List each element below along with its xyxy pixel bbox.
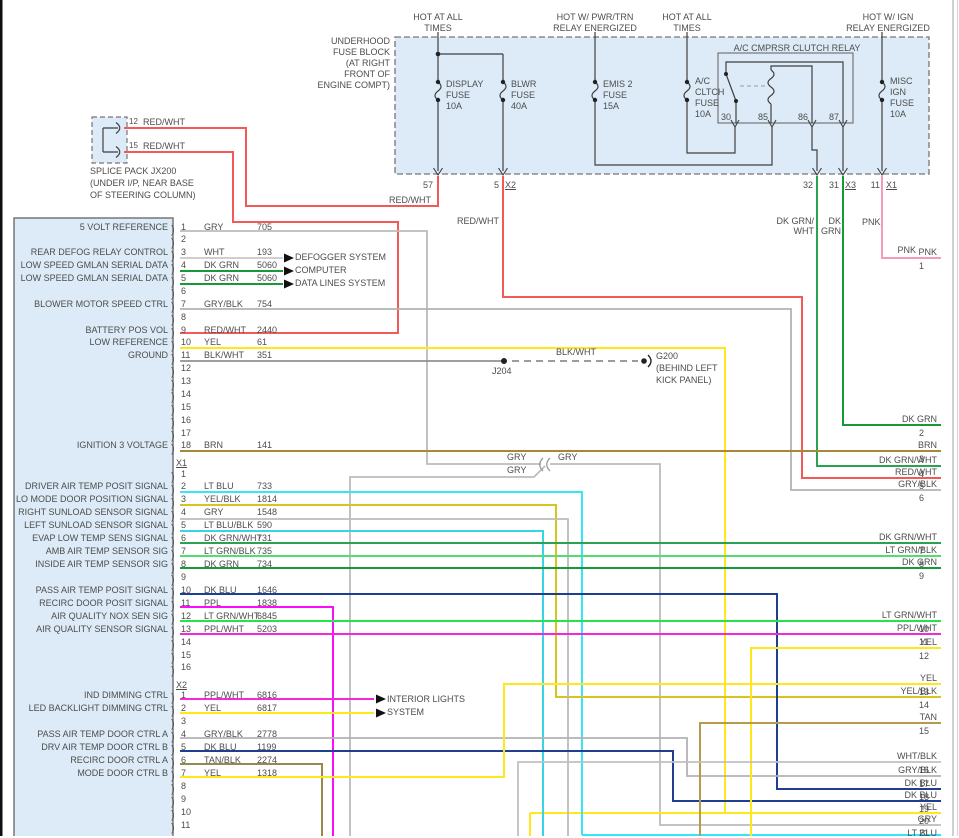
power-source-header: RELAY ENERGIZED: [553, 23, 637, 33]
exit-wire-label: DK GRN/WHT: [879, 455, 937, 465]
exit-wire-label: LT GRN/BLK: [885, 545, 937, 555]
wire-color-label: DK GRN: [204, 559, 239, 569]
power-source-header: HOT AT ALL: [662, 12, 712, 22]
pin-bracket: ): [171, 225, 175, 236]
pin-bracket: ): [171, 511, 175, 522]
exit-number: 9: [919, 571, 924, 581]
pin-number: 11: [181, 820, 190, 830]
wire-color-label: DK GRN: [204, 273, 239, 283]
pin-number: 12: [181, 363, 191, 373]
relay-pin-number: 30: [721, 112, 731, 122]
pin-number: 10: [181, 807, 191, 817]
pin-number: 16: [181, 662, 191, 672]
wire-color-label: LT BLU: [204, 481, 234, 491]
wire-label: BLK/WHT: [556, 347, 596, 357]
page-left-border: [0, 0, 3, 836]
pin-number: 2: [181, 703, 186, 713]
pin-bracket: ): [171, 563, 175, 574]
fuse-name: CLTCH: [695, 87, 724, 97]
fuse-name: FUSE: [890, 98, 914, 108]
pin-bracket: ): [171, 758, 175, 769]
exit-wire-label: DK GRN: [902, 414, 937, 424]
signal-label: LO MODE DOOR POSITION SIGNAL: [16, 494, 168, 504]
system-arrow-label: INTERIOR LIGHTS: [387, 694, 465, 704]
exit-wire-label: BRN: [918, 440, 937, 450]
signal-label: DRV AIR TEMP DOOR CTRL B: [41, 742, 168, 752]
fuse-block-label: UNDERHOOD: [331, 36, 390, 46]
wiring-diagram: HOT AT ALLTIMESHOT W/ PWR/TRNRELAY ENERG…: [0, 0, 959, 836]
signal-label: BLOWER MOTOR SPEED CTRL: [34, 299, 168, 309]
exit-wire-label: DK GRN/WHT: [879, 532, 937, 542]
splice-wire-label: RED/WHT: [143, 117, 185, 127]
signal-label: RECIRC DOOR POSIT SIGNAL: [39, 598, 168, 608]
pin-number: 5: [181, 520, 186, 530]
pin-bracket: ): [171, 367, 175, 378]
pin-bracket: ): [171, 653, 175, 664]
circuit-number: 61: [257, 337, 267, 347]
exit-wire-label: TAN: [920, 712, 937, 722]
fuse-exit-connector: X3: [845, 180, 856, 190]
wire-yel-blk-1814: [180, 505, 941, 697]
pin-bracket: ): [171, 289, 175, 300]
exit-wire-label: PPL/WHT: [897, 623, 937, 633]
pin-bracket: ): [171, 264, 175, 275]
wire-color-label: YEL: [204, 768, 221, 778]
circuit-number: 1199: [257, 742, 276, 752]
pin-bracket: ): [171, 784, 175, 795]
splice-pack-box: [92, 117, 127, 163]
fuse-name: EMIS 2: [603, 79, 633, 89]
signal-label: AIR QUALITY NOX SEN SIG: [51, 611, 168, 621]
circuit-number: 705: [257, 222, 272, 232]
pin-number: 7: [181, 299, 186, 309]
fuse-exit-number: 5: [494, 180, 499, 190]
pin-number: 7: [181, 768, 186, 778]
splice-wire-label: RED/WHT: [143, 141, 185, 151]
relay-pin-number: 86: [798, 112, 808, 122]
pin-number: 3: [181, 247, 186, 257]
pin-number: 17: [181, 428, 191, 438]
pin-number: 5: [181, 742, 186, 752]
ground-name: G200: [656, 351, 678, 361]
signal-label: LEFT SUNLOAD SENSOR SIGNAL: [24, 520, 168, 530]
pin-bracket: ): [171, 666, 175, 677]
wire-label: GRY: [507, 465, 526, 475]
pin-bracket: ): [171, 354, 175, 365]
wire-color-label: PPL/WHT: [204, 690, 244, 700]
fuse-name: MISC: [890, 76, 913, 86]
fuse-name: 10A: [446, 101, 462, 111]
circuit-number: 6817: [257, 703, 277, 713]
pin-bracket: ): [171, 524, 175, 535]
fuse-name: IGN: [890, 87, 906, 97]
pin-number: 9: [181, 572, 186, 582]
pin-bracket: ): [171, 315, 175, 326]
signal-label: PASS AIR TEMP DOOR CTRL A: [37, 729, 168, 739]
pin-bracket: ): [171, 498, 175, 509]
power-source-header: HOT AT ALL: [413, 12, 463, 22]
circuit-number: 733: [257, 481, 272, 491]
pin-bracket: ): [171, 380, 175, 391]
splice-pin-number: 15: [129, 141, 138, 151]
pin-bracket: ): [171, 745, 175, 756]
relay-pin-number: 85: [758, 112, 768, 122]
pin-number: 12: [181, 611, 191, 621]
circuit-number: 1838: [257, 598, 277, 608]
wire-tan-blk-2274: [180, 764, 322, 836]
wire-label: RED/WHT: [457, 216, 499, 226]
wire-color-label: GRY: [204, 222, 223, 232]
pin-bracket: ): [171, 627, 175, 638]
fuse-block-label: FRONT OF: [344, 69, 390, 79]
wire-color-label: DK GRN/WHT: [204, 533, 262, 543]
fuse-name: 15A: [603, 101, 619, 111]
circuit-number: 6816: [257, 690, 277, 700]
signal-label: INSIDE AIR TEMP SENSOR SIG: [35, 559, 168, 569]
circuit-number: 735: [257, 546, 272, 556]
ground-location: (BEHIND LEFT: [656, 363, 718, 373]
pin-number: 11: [181, 598, 190, 608]
exit-wire-label: GRY/BLK: [898, 765, 937, 775]
power-source-header: TIMES: [424, 23, 452, 33]
wire-label: GRN: [821, 226, 841, 236]
wire-color-label: GRY/BLK: [204, 729, 243, 739]
exit-wire-label: LT BLU: [907, 828, 937, 838]
circuit-number: 2778: [257, 729, 277, 739]
exit-wire-label: DK GRN: [902, 557, 937, 567]
signal-label: 5 VOLT REFERENCE: [80, 222, 168, 232]
wire-color-label: PPL/WHT: [204, 624, 244, 634]
wire-color-label: LT GRN/BLK: [204, 546, 256, 556]
fuse-name: BLWR: [511, 79, 536, 89]
signal-label: DRIVER AIR TEMP POSIT SIGNAL: [25, 481, 168, 491]
wire-label: DK GRN/: [776, 216, 814, 226]
wire-lt-blu-blk-590: [180, 531, 543, 836]
fuse-exit-connector: X2: [505, 180, 516, 190]
signal-label: LED BACKLIGHT DIMMING CTRL: [29, 703, 168, 713]
circuit-number: 141: [257, 440, 272, 450]
wire-color-label: BLK/WHT: [204, 350, 244, 360]
connector-section-header: X2: [176, 680, 187, 690]
exit-number: 15: [919, 726, 929, 736]
pin-number: 1: [181, 469, 186, 479]
pin-number: 9: [181, 794, 186, 804]
system-arrow-label: DATA LINES SYSTEM: [295, 278, 385, 288]
fuse-name: FUSE: [603, 90, 627, 100]
system-arrows: [284, 254, 386, 718]
signal-label: MODE DOOR CTRL B: [77, 768, 168, 778]
inline-connector-symbol: [540, 458, 550, 471]
circuit-number: 6845: [257, 611, 277, 621]
pin-number: 4: [181, 260, 186, 270]
fuse-name: A/C: [695, 76, 710, 86]
pin-bracket: ): [171, 431, 175, 442]
pin-bracket: ): [171, 706, 175, 717]
circuit-number: 5203: [257, 624, 277, 634]
pin-number: 2: [181, 234, 186, 244]
pin-number: 6: [181, 755, 186, 765]
wire-dk-grn-relay-87: [843, 176, 941, 425]
signal-label: GROUND: [128, 350, 168, 360]
exit-wire-label: LT GRN/WHT: [882, 610, 937, 620]
wire-color-label: BRN: [204, 440, 223, 450]
circuit-number: 2440: [257, 325, 277, 335]
pin-bracket: ): [171, 251, 175, 262]
fuse-exit-number: 31: [829, 180, 839, 190]
pin-number: 10: [181, 337, 191, 347]
fuse-name: 10A: [890, 109, 906, 119]
pin-number: 1: [181, 690, 186, 700]
pin-number: 15: [181, 650, 191, 660]
pin-number: 18: [181, 440, 191, 450]
wire-label: PNK: [862, 217, 881, 227]
wire-color-label: DK GRN: [204, 260, 239, 270]
fuse-exit-number: 57: [423, 180, 433, 190]
pin-number: 6: [181, 286, 186, 296]
wire-color-label: LT GRN/WHT: [204, 611, 259, 621]
exit-wire-label: YEL/BLK: [900, 686, 937, 696]
power-source-header: RELAY ENERGIZED: [846, 23, 930, 33]
pin-bracket: ): [171, 341, 175, 352]
fuse-block-label: (AT RIGHT: [346, 58, 390, 68]
signal-label: EVAP LOW TEMP SENS SIGNAL: [32, 533, 168, 543]
pin-number: 14: [181, 637, 191, 647]
exit-wire-label: GRY: [918, 814, 937, 824]
wire-gry-blk-754: [180, 309, 941, 490]
pin-bracket: ): [171, 797, 175, 808]
fuse-block-label: FUSE BLOCK: [333, 47, 390, 57]
signal-label: IGNITION 3 VOLTAGE: [77, 440, 168, 450]
circuit-number: 754: [257, 299, 272, 309]
pin-bracket: ): [171, 418, 175, 429]
pin-bracket: ): [171, 485, 175, 496]
exit-wire-label: YEL: [920, 673, 937, 683]
wire-color-label: DK BLU: [204, 585, 237, 595]
wire-color-label: GRY/BLK: [204, 299, 243, 309]
circuit-number: 351: [257, 350, 272, 360]
fuse-name: FUSE: [695, 98, 719, 108]
pin-number: 9: [181, 325, 186, 335]
fuse-exit-number: 11: [871, 180, 880, 190]
pin-bracket: ): [171, 328, 175, 339]
wire-ppl-1838: [180, 607, 333, 836]
pin-bracket: ): [171, 238, 175, 249]
wire-gry-705: [180, 231, 941, 836]
wire-gry-blk-2778: [180, 738, 941, 776]
relay-pin-number: 87: [829, 112, 839, 122]
pin-bracket: ): [171, 771, 175, 782]
underhood-fuse-block-box: [395, 37, 929, 174]
pin-bracket: ): [171, 277, 175, 288]
pin-number: 5: [181, 273, 186, 283]
circuit-number: 590: [257, 520, 272, 530]
exit-number: 12: [919, 651, 929, 661]
ground-junction-label: J204: [492, 366, 512, 376]
ground-location: KICK PANEL): [656, 375, 711, 385]
circuit-number: 1814: [257, 494, 277, 504]
pin-bracket: ): [171, 405, 175, 416]
signal-label: RECIRC DOOR CTRL A: [70, 755, 168, 765]
wire-label: DK: [828, 216, 841, 226]
wire-color-label: GRY: [204, 507, 223, 517]
signal-label: RIGHT SUNLOAD SENSOR SIGNAL: [18, 507, 168, 517]
pin-bracket: ): [171, 810, 175, 821]
wire-label: WHT: [794, 226, 815, 236]
circuit-number: 1548: [257, 507, 277, 517]
fuse-name: FUSE: [446, 90, 470, 100]
wire-color-label: YEL: [204, 703, 221, 713]
signal-label: LOW SPEED GMLAN SERIAL DATA: [21, 273, 168, 283]
signal-label: AMB AIR TEMP SENSOR SIG: [46, 546, 168, 556]
splice-pack-label: OF STEERING COLUMN): [90, 190, 196, 200]
wire-color-label: PPL: [204, 598, 221, 608]
wire-color-label: WHT: [204, 247, 225, 257]
pin-bracket: ): [171, 601, 175, 612]
pin-number: 6: [181, 533, 186, 543]
exit-wire-label: RED/WHT: [895, 467, 937, 477]
pin-bracket: ): [171, 823, 175, 834]
pin-number: 1: [181, 222, 186, 232]
power-source-header: HOT W/ PWR/TRN: [557, 12, 634, 22]
wire-color-label: LT BLU/BLK: [204, 520, 253, 530]
circuit-number: 1646: [257, 585, 277, 595]
power-source-header: HOT W/ IGN: [863, 12, 914, 22]
signal-label: IND DIMMING CTRL: [84, 690, 168, 700]
pin-bracket: ): [171, 392, 175, 403]
exit-wire-label: DK BLU: [904, 790, 937, 800]
signal-label: BATTERY POS VOL: [85, 325, 168, 335]
circuit-number: 2274: [257, 755, 277, 765]
pin-bracket: ): [171, 550, 175, 561]
fuse-name: FUSE: [511, 90, 535, 100]
pin-bracket: ): [171, 614, 175, 625]
pin-bracket: ): [171, 537, 175, 548]
pin-bracket: ): [171, 719, 175, 730]
circuit-number: 5060: [257, 273, 277, 283]
circuit-number: 734: [257, 559, 272, 569]
relay-title: A/C CMPRSR CLUTCH RELAY: [734, 43, 861, 53]
pin-number: 13: [181, 624, 191, 634]
wire-yel-exit-12: [751, 648, 941, 836]
fuse-name: DISPLAY: [446, 79, 483, 89]
pin-number: 13: [181, 376, 191, 386]
exit-wire-label: YEL: [920, 637, 937, 647]
pin-number: 8: [181, 559, 186, 569]
wire-color-label: YEL/BLK: [204, 494, 241, 504]
pin-number: 4: [181, 507, 186, 517]
splice-pin-number: 12: [129, 117, 138, 127]
pin-bracket: ): [171, 588, 175, 599]
signal-label: LOW REFERENCE: [89, 337, 168, 347]
signal-label: PASS AIR TEMP POSIT SIGNAL: [36, 585, 168, 595]
system-arrow-label: COMPUTER: [295, 265, 347, 275]
wire-label: GRY: [558, 452, 577, 462]
wire-label: PNK: [897, 245, 916, 255]
exit-number: 6: [919, 493, 924, 503]
wire-color-label: DK BLU: [204, 742, 237, 752]
fuse-exit-connector: X1: [886, 180, 897, 190]
pin-bracket: ): [171, 302, 175, 313]
fuse-name: 10A: [695, 109, 711, 119]
wire-label: RED/WHT: [389, 195, 431, 205]
signal-label: LOW SPEED GMLAN SERIAL DATA: [21, 260, 168, 270]
splice-pack-label: (UNDER I/P, NEAR BASE: [90, 178, 194, 188]
pin-number: 3: [181, 494, 186, 504]
pin-number: 8: [181, 781, 186, 791]
exit-number: 2: [919, 428, 924, 438]
splice-pack-label: SPLICE PACK JX200: [90, 166, 176, 176]
exit-number: 1: [919, 261, 924, 271]
fuse-exit-number: 32: [803, 180, 813, 190]
signal-label: AIR QUALITY SENSOR SIGNAL: [36, 624, 168, 634]
circuit-number: 193: [257, 247, 272, 257]
pin-number: 8: [181, 312, 186, 322]
signal-label: REAR DEFOG RELAY CONTROL: [31, 247, 168, 257]
pin-number: 11: [181, 350, 190, 360]
fuse-block-label: ENGINE COMPT): [317, 80, 390, 90]
wire-label: GRY: [507, 452, 526, 462]
circuit-number: 731: [257, 533, 272, 543]
ground-symbol-g200: [641, 355, 651, 367]
pin-bracket: ): [171, 640, 175, 651]
system-arrow-label: DEFOGGER SYSTEM: [295, 252, 386, 262]
exit-wire-label: DK BLU: [904, 778, 937, 788]
pin-number: 16: [181, 415, 191, 425]
wire-dk-blu-1646: [180, 594, 941, 789]
pin-number: 7: [181, 546, 186, 556]
pin-number: 3: [181, 716, 186, 726]
pin-bracket: ): [171, 444, 175, 455]
pin-bracket: ): [171, 575, 175, 586]
pin-number: 14: [181, 389, 191, 399]
system-arrow-label: SYSTEM: [387, 707, 424, 717]
power-source-header: TIMES: [673, 23, 701, 33]
circuit-number: 5060: [257, 260, 277, 270]
exit-wire-label: PNK: [918, 247, 937, 257]
connector-section-header: X1: [176, 458, 187, 468]
pin-number: 2: [181, 481, 186, 491]
wire-color-label: YEL: [204, 337, 221, 347]
pin-number: 10: [181, 585, 191, 595]
pin-number: 4: [181, 729, 186, 739]
wire-color-label: RED/WHT: [204, 325, 246, 335]
wire-color-label: TAN/BLK: [204, 755, 241, 765]
pin-bracket: ): [171, 472, 175, 483]
pin-bracket: ): [171, 732, 175, 743]
pin-number: 15: [181, 402, 191, 412]
circuit-number: 1318: [257, 768, 277, 778]
exit-number: 14: [919, 700, 929, 710]
exit-wire-label: WHT/BLK: [897, 751, 937, 761]
fuse-name: 40A: [511, 101, 527, 111]
exit-wire-label: YEL: [920, 802, 937, 812]
exit-wire-label: GRY/BLK: [898, 479, 937, 489]
pin-bracket: ): [171, 693, 175, 704]
